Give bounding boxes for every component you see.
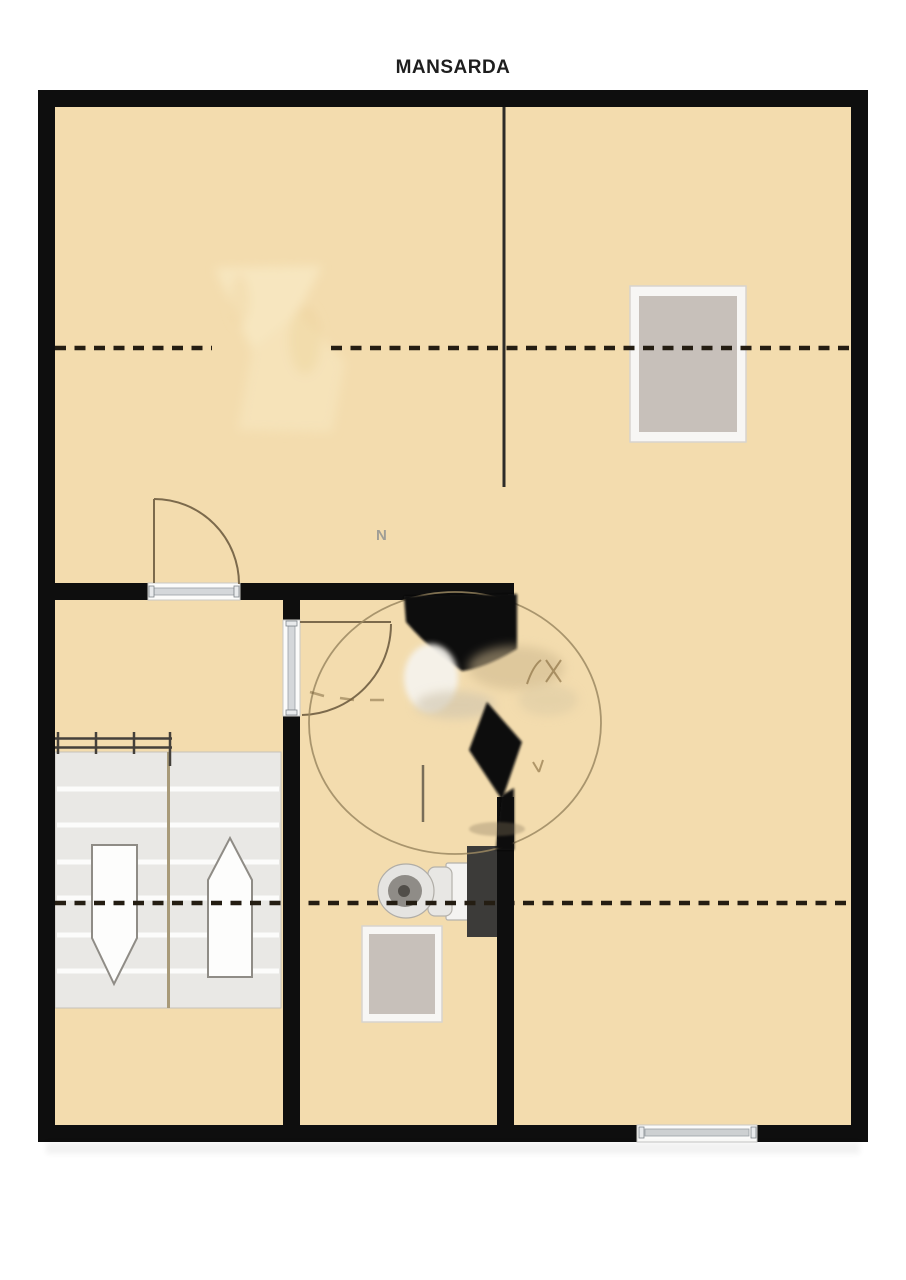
watermark-letter: N (376, 527, 387, 544)
staircase (52, 732, 281, 1008)
toilet (378, 863, 472, 920)
bottom-window (637, 1125, 757, 1142)
door-threshold-upper (148, 583, 240, 600)
dark-fixture (467, 846, 497, 937)
floorplan-drawing (0, 0, 906, 1280)
scan-shadow (46, 1142, 860, 1154)
floorplan-canvas: MANSARDA (0, 0, 906, 1280)
door-threshold-bathroom (283, 620, 300, 716)
skylight-window-right (630, 286, 746, 442)
skylight-window-bathroom (362, 926, 442, 1022)
